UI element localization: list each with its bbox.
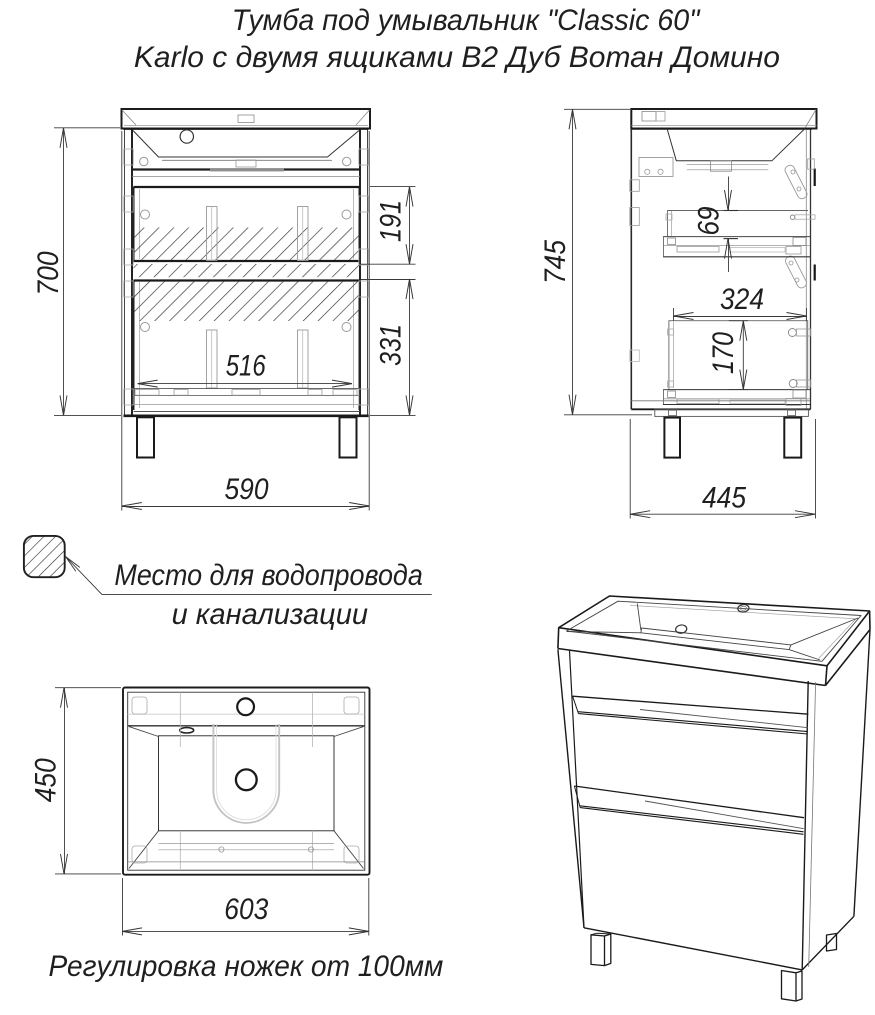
svg-text:700: 700: [32, 251, 65, 295]
svg-text:Karlo с двумя ящиками В2 Дуб В: Karlo с двумя ящиками В2 Дуб Вотан Домин…: [134, 41, 780, 74]
svg-text:Регулировка ножек от 100мм: Регулировка ножек от 100мм: [49, 950, 444, 983]
svg-text:Место для водопровода: Место для водопровода: [114, 559, 422, 592]
svg-text:445: 445: [702, 482, 746, 515]
svg-text:324: 324: [720, 283, 764, 316]
svg-text:191: 191: [375, 200, 408, 242]
svg-text:745: 745: [539, 240, 572, 284]
svg-text:и канализации: и канализации: [172, 598, 369, 631]
svg-text:Тумба под умывальник "Classic: Тумба под умывальник "Classic 60": [232, 4, 701, 37]
svg-text:331: 331: [375, 324, 408, 366]
svg-text:516: 516: [226, 350, 266, 383]
svg-text:590: 590: [225, 473, 269, 506]
svg-text:603: 603: [224, 893, 268, 926]
svg-text:450: 450: [29, 758, 62, 802]
svg-text:170: 170: [707, 332, 740, 374]
svg-text:69: 69: [693, 206, 726, 235]
